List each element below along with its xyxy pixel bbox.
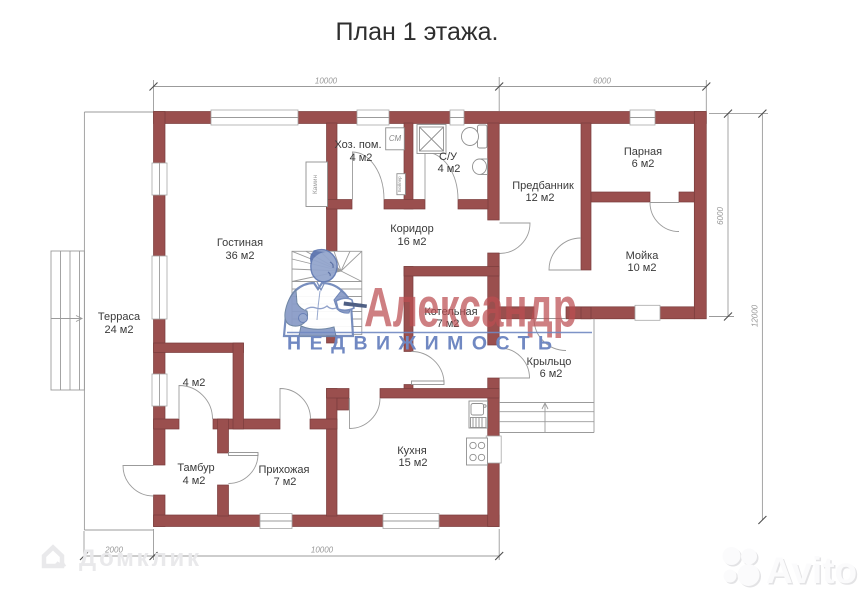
svg-text:7 м2: 7 м2 [274,476,297,488]
svg-text:4 м2: 4 м2 [183,377,206,389]
svg-text:Александр: Александр [364,276,577,339]
svg-text:16 м2: 16 м2 [398,236,427,248]
svg-text:Прихожая: Прихожая [259,464,310,476]
svg-text:6 м2: 6 м2 [632,158,655,170]
svg-text:36 м2: 36 м2 [226,250,255,262]
svg-text:Парная: Парная [624,146,662,158]
svg-text:Бойлер: Бойлер [396,176,402,192]
svg-text:10 м2: 10 м2 [628,262,657,274]
svg-text:12 м2: 12 м2 [526,192,555,204]
svg-text:С/У: С/У [439,151,458,163]
svg-text:10000: 10000 [311,546,334,555]
svg-text:Гостиная: Гостиная [217,237,263,249]
svg-text:4 м2: 4 м2 [438,163,461,175]
svg-text:Камин: Камин [312,175,319,195]
svg-text:Крыльцо: Крыльцо [527,356,572,368]
svg-text:Кухня: Кухня [397,445,426,457]
svg-text:Коридор: Коридор [390,223,433,235]
svg-text:Тамбур: Тамбур [177,462,214,474]
svg-text:4 м2: 4 м2 [350,152,373,164]
svg-text:Avito: Avito [766,550,857,591]
svg-text:Хоз. пом.: Хоз. пом. [334,139,381,151]
svg-text:4 м2: 4 м2 [183,475,206,487]
svg-text:6000: 6000 [593,77,611,86]
svg-text:6000: 6000 [716,207,725,225]
svg-text:10000: 10000 [315,77,338,86]
svg-text:План 1 этажа.: План 1 этажа. [336,18,499,46]
svg-text:Мойка: Мойка [626,250,660,262]
svg-text:Предбанник: Предбанник [512,180,574,192]
svg-text:15 м2: 15 м2 [399,457,428,469]
svg-text:12000: 12000 [750,304,759,327]
svg-text:Терраса: Терраса [98,311,141,323]
svg-text:6 м2: 6 м2 [540,368,563,380]
svg-text:24 м2: 24 м2 [105,324,134,336]
svg-text:СМ: СМ [389,134,402,143]
